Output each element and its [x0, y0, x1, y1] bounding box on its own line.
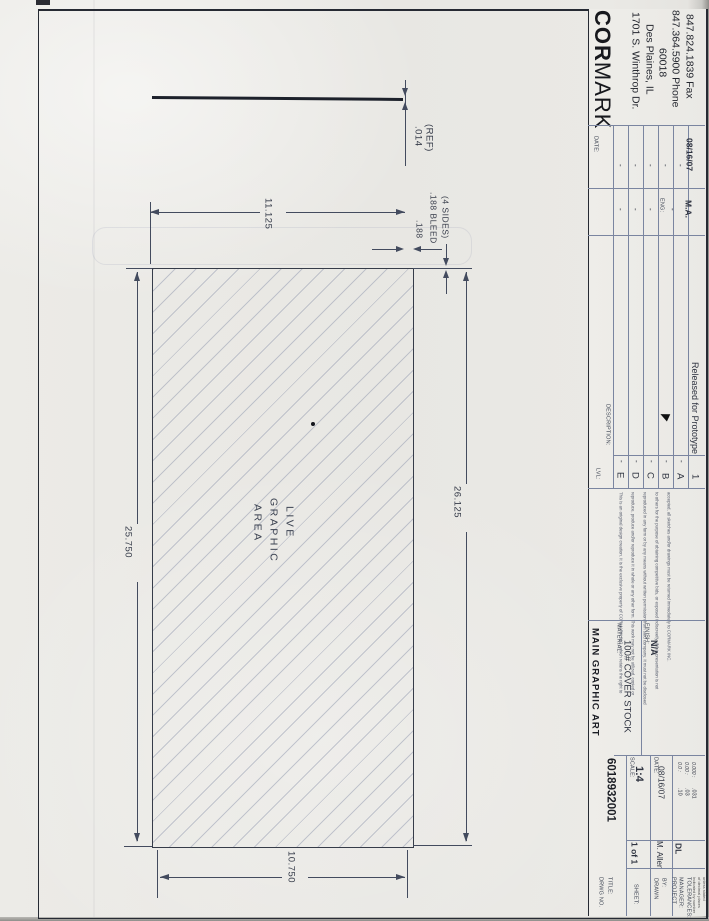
section-line	[588, 488, 705, 489]
overall-length-dim: 26.125	[452, 486, 462, 518]
cell-line	[641, 620, 642, 755]
cell-line	[650, 755, 651, 916]
arrowhead-up-icon	[134, 272, 140, 281]
scanned-engineering-drawing: .014 (REF) LIVE GRAPHIC AREA 11.125 .188…	[0, 0, 709, 921]
rev-desc-header: DESCRIPTION:	[604, 404, 610, 446]
tolerance-note1: Indicated by number	[692, 877, 696, 913]
drawing-title: MAIN GRAPHIC ART	[590, 628, 600, 737]
dim-line	[160, 877, 282, 878]
rev-date-dash: -	[646, 164, 654, 167]
cell-line	[588, 188, 705, 189]
arrowhead-down-icon	[443, 258, 449, 266]
rev-eng-value: M.A.	[684, 200, 693, 218]
company-fax: 847.824.1839 Fax	[684, 14, 695, 99]
dim-line	[150, 212, 260, 213]
rev-lvl-a: A	[675, 473, 685, 479]
ext-line	[126, 268, 152, 269]
arrowhead-down-icon	[402, 88, 408, 96]
section-line	[588, 620, 705, 621]
rev-eng-dash: -	[668, 208, 676, 211]
live-length-dim: 25.750	[123, 526, 133, 558]
ref-thickness-dim: .014	[413, 126, 423, 147]
sheet-value: 1 of 1	[630, 842, 639, 864]
ext-line	[157, 850, 158, 898]
rev-eng-dash: -	[646, 208, 654, 211]
company-zip: 60018	[657, 48, 668, 77]
rev-date-header: DATE:	[592, 136, 598, 153]
scan-corner-mark	[36, 0, 50, 5]
logo-light-part: MARK	[590, 62, 615, 130]
rev-lvl-c: C	[645, 472, 655, 479]
scale-value: 1:4	[633, 766, 644, 782]
company-phone: 847.364.5900 Phone	[670, 10, 681, 108]
live-width-dim: 10.750	[286, 851, 296, 883]
rev-date-value: 08/16/07	[685, 138, 694, 171]
rev-row-line	[673, 125, 674, 488]
drawn-by-label2: BY:	[660, 878, 666, 887]
pm-label2: MANAGER:	[677, 877, 683, 908]
arrowhead-left-icon	[160, 874, 169, 880]
arrowhead-up-icon	[443, 270, 449, 278]
disclaimer-line3: reproduced in any form or by any means w…	[642, 492, 646, 704]
sheet-label: SHEET:	[632, 884, 638, 904]
disclaimer-line5: accepted, all sketches and/or drawings m…	[666, 492, 670, 662]
cell-line	[626, 755, 627, 916]
logo-bold-part: COR	[590, 10, 615, 62]
ext-line	[407, 850, 408, 898]
ext-line	[413, 845, 472, 846]
cell-line	[588, 235, 705, 236]
live-graphic-area-rect	[152, 268, 414, 848]
dim-line	[137, 582, 138, 841]
live-area-label-line1: LIVE	[284, 506, 295, 539]
rev-date-dash: -	[676, 164, 684, 167]
disclaimer-line4: to others for the purpose of obtaining c…	[654, 492, 658, 689]
tolerance-label1: 0.0 :	[676, 762, 681, 772]
tolerances-label: TOLERANCES:	[685, 877, 691, 918]
dim-line	[286, 212, 405, 213]
arrowhead-left-icon	[413, 246, 421, 252]
arrowhead-right-icon	[396, 246, 404, 252]
drawn-by-label1: DRAWN	[652, 878, 658, 900]
dwg-number: 6018932001	[604, 758, 616, 822]
dim-line	[466, 532, 467, 841]
tolerance-value2: .03	[683, 788, 689, 796]
cell-line	[626, 840, 705, 841]
tolerance-value3: .031	[690, 788, 696, 799]
rev-date-dash: -	[631, 164, 639, 167]
tolerance-note2: of decimal places	[697, 877, 701, 908]
rev-released-desc: Released for Prototype	[690, 362, 699, 454]
drawn-by-value: M. Allen	[655, 841, 663, 869]
cell-line	[626, 868, 705, 869]
rev-desc-dash: -	[677, 460, 685, 463]
rev-lvl-e: E	[615, 472, 625, 478]
section-line	[614, 755, 705, 756]
material-label: MATERIAL:	[615, 623, 621, 653]
rev-date-dash: -	[616, 164, 624, 167]
arrowhead-left-icon	[150, 209, 159, 215]
tolerance-label2: 0.00 :	[683, 762, 688, 775]
rev-desc-dash: -	[662, 460, 670, 463]
bleed-width-dim: 11.125	[263, 198, 273, 229]
ink-speck	[311, 422, 315, 426]
bleed-note-line2: (4 SIDES)	[441, 196, 450, 239]
rev-date-dash: -	[661, 164, 669, 167]
rev-row-line	[643, 125, 644, 488]
tolerance-note3: unless stated	[702, 877, 706, 901]
rev-lvl-d: D	[630, 472, 640, 479]
rev-lvl-header: LVL:	[594, 468, 600, 480]
bleed-gap-dim: .188	[415, 220, 424, 239]
live-area-label-line3: AREA	[252, 504, 263, 543]
ext-line	[124, 846, 152, 847]
arrowhead-right-icon	[396, 209, 405, 215]
rev-desc-dash: -	[617, 460, 625, 463]
arrowhead-up-icon	[463, 272, 469, 281]
pm-value: DL	[674, 843, 683, 854]
rev-row-line	[613, 125, 614, 488]
title-label: TITLE:	[606, 877, 612, 895]
rev-desc-dash: -	[632, 460, 640, 463]
bleed-note-line1: .188 BLEED	[429, 192, 438, 244]
rev-lvl-b: B	[660, 473, 670, 479]
finish-label: FINISH:	[643, 623, 649, 644]
dim-line	[308, 877, 405, 878]
company-address1: 1701 S. Winthrop Dr.	[630, 12, 641, 109]
dim-line	[421, 249, 442, 250]
ref-suffix: (REF)	[424, 124, 434, 152]
ext-line	[413, 268, 472, 269]
rev-lvl-1: 1	[690, 474, 700, 479]
dim-line	[372, 249, 396, 250]
arrowhead-down-icon	[463, 833, 469, 842]
rev-row-line	[688, 125, 689, 488]
date-value: 08/16/07	[657, 766, 666, 799]
ext-line	[446, 278, 447, 294]
rev-row-line	[658, 125, 659, 488]
rev-eng-dash: -	[616, 208, 624, 211]
cell-line	[613, 455, 705, 456]
company-address2: Des Plaines, IL	[644, 24, 655, 95]
arrowhead-right-icon	[396, 874, 405, 880]
dim-line	[137, 272, 138, 524]
arrowhead-down-icon	[134, 833, 140, 842]
rev-eng-dash: -	[631, 208, 639, 211]
rev-desc-dash: -	[647, 460, 655, 463]
live-area-label-line2: GRAPHIC	[268, 498, 279, 563]
arrowhead-up-icon	[402, 102, 408, 110]
tolerance-value1: .10	[676, 788, 682, 796]
tolerance-label3: 0.000 :	[690, 762, 695, 777]
dwg-no-label: DRWG NO.	[597, 877, 603, 907]
rev-row-line	[628, 125, 629, 488]
finish-value: N/A	[649, 640, 658, 656]
rev-eng-header: ENG:	[658, 198, 664, 212]
pm-label1: PROJECT	[670, 877, 676, 904]
dim-line	[466, 272, 467, 484]
material-value: 100# COVER STOCK	[622, 640, 632, 733]
company-logo: CORMARK	[591, 10, 613, 129]
